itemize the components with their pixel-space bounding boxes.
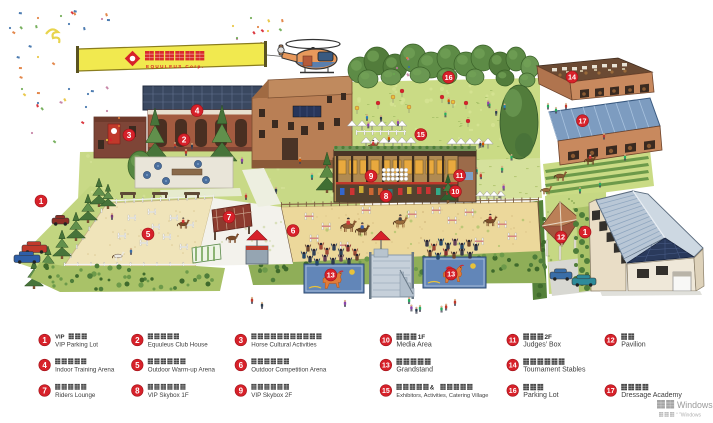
svg-text:3: 3 (239, 336, 244, 345)
svg-text:Outdoor Competition Arena: Outdoor Competition Arena (251, 367, 327, 374)
svg-text:13: 13 (382, 363, 390, 370)
svg-text:11: 11 (509, 338, 517, 345)
svg-text:14: 14 (509, 363, 517, 370)
svg-text:9: 9 (239, 386, 244, 395)
svg-text:VIP Skybox 1F: VIP Skybox 1F (148, 392, 189, 399)
svg-text:17: 17 (579, 116, 587, 125)
svg-text:Parking Lot: Parking Lot (523, 392, 558, 399)
svg-text:Pavilion: Pavilion (621, 342, 646, 349)
svg-text:10: 10 (382, 338, 390, 345)
svg-text:11: 11 (456, 171, 464, 180)
svg-text:9: 9 (369, 171, 374, 181)
svg-text:1: 1 (583, 227, 588, 237)
svg-text:Grandstand: Grandstand (396, 367, 433, 374)
svg-text:Media Area: Media Area (396, 342, 432, 349)
svg-text:8: 8 (384, 191, 389, 201)
svg-text:2: 2 (135, 336, 140, 345)
svg-text:6: 6 (239, 361, 244, 370)
svg-text:13: 13 (327, 271, 335, 280)
svg-text:13: 13 (447, 270, 455, 279)
svg-text:5: 5 (146, 229, 151, 239)
svg-text:Equuleus Club House: Equuleus Club House (148, 342, 208, 349)
svg-text:4: 4 (195, 106, 200, 116)
svg-text:10: 10 (451, 187, 459, 196)
svg-text:1F: 1F (418, 334, 426, 341)
svg-text:12: 12 (557, 233, 565, 242)
svg-text:6: 6 (291, 226, 296, 236)
svg-text:Outdoor Warm-up Arena: Outdoor Warm-up Arena (148, 367, 216, 374)
svg-text:14: 14 (568, 73, 576, 82)
svg-text:VIP Parking Lot: VIP Parking Lot (55, 342, 98, 349)
svg-text:5: 5 (135, 361, 140, 370)
svg-text:3: 3 (127, 130, 132, 140)
svg-text:4: 4 (42, 361, 47, 370)
svg-text:8: 8 (135, 386, 140, 395)
svg-text:1: 1 (42, 336, 47, 345)
svg-text:Horse Cultural Activities: Horse Cultural Activities (251, 342, 316, 349)
svg-text:VIP Skybox 2F: VIP Skybox 2F (251, 392, 292, 399)
svg-text:Windows: Windows (677, 400, 713, 410)
svg-text:1: 1 (39, 196, 44, 206)
svg-text:16: 16 (509, 388, 517, 395)
svg-text:12: 12 (607, 338, 615, 345)
svg-text:Judges’ Box: Judges’ Box (523, 342, 561, 349)
svg-text:Dressage Academy: Dressage Academy (621, 392, 682, 399)
svg-text:16: 16 (445, 73, 453, 82)
svg-text:EQUULEUS Corp.: EQUULEUS Corp. (146, 64, 204, 69)
svg-text:17: 17 (607, 388, 615, 395)
svg-text:2: 2 (182, 135, 187, 145)
svg-text:&: & (430, 385, 435, 391)
svg-text:Tournament Stables: Tournament Stables (523, 367, 586, 374)
svg-text:7: 7 (42, 386, 47, 395)
svg-text:“ ”Windows: “ ”Windows (676, 413, 702, 419)
svg-text:Indoor Training Arena: Indoor Training Arena (55, 367, 115, 374)
svg-text:15: 15 (417, 130, 425, 139)
svg-text:2F: 2F (545, 334, 553, 341)
svg-text:7: 7 (227, 212, 232, 222)
svg-text:Riders Lounge: Riders Lounge (55, 392, 96, 399)
svg-text:15: 15 (382, 388, 390, 395)
svg-text:VIP: VIP (55, 335, 64, 341)
svg-text:Exhibitors, Activities, Cateri: Exhibitors, Activities, Catering Village (396, 393, 488, 399)
